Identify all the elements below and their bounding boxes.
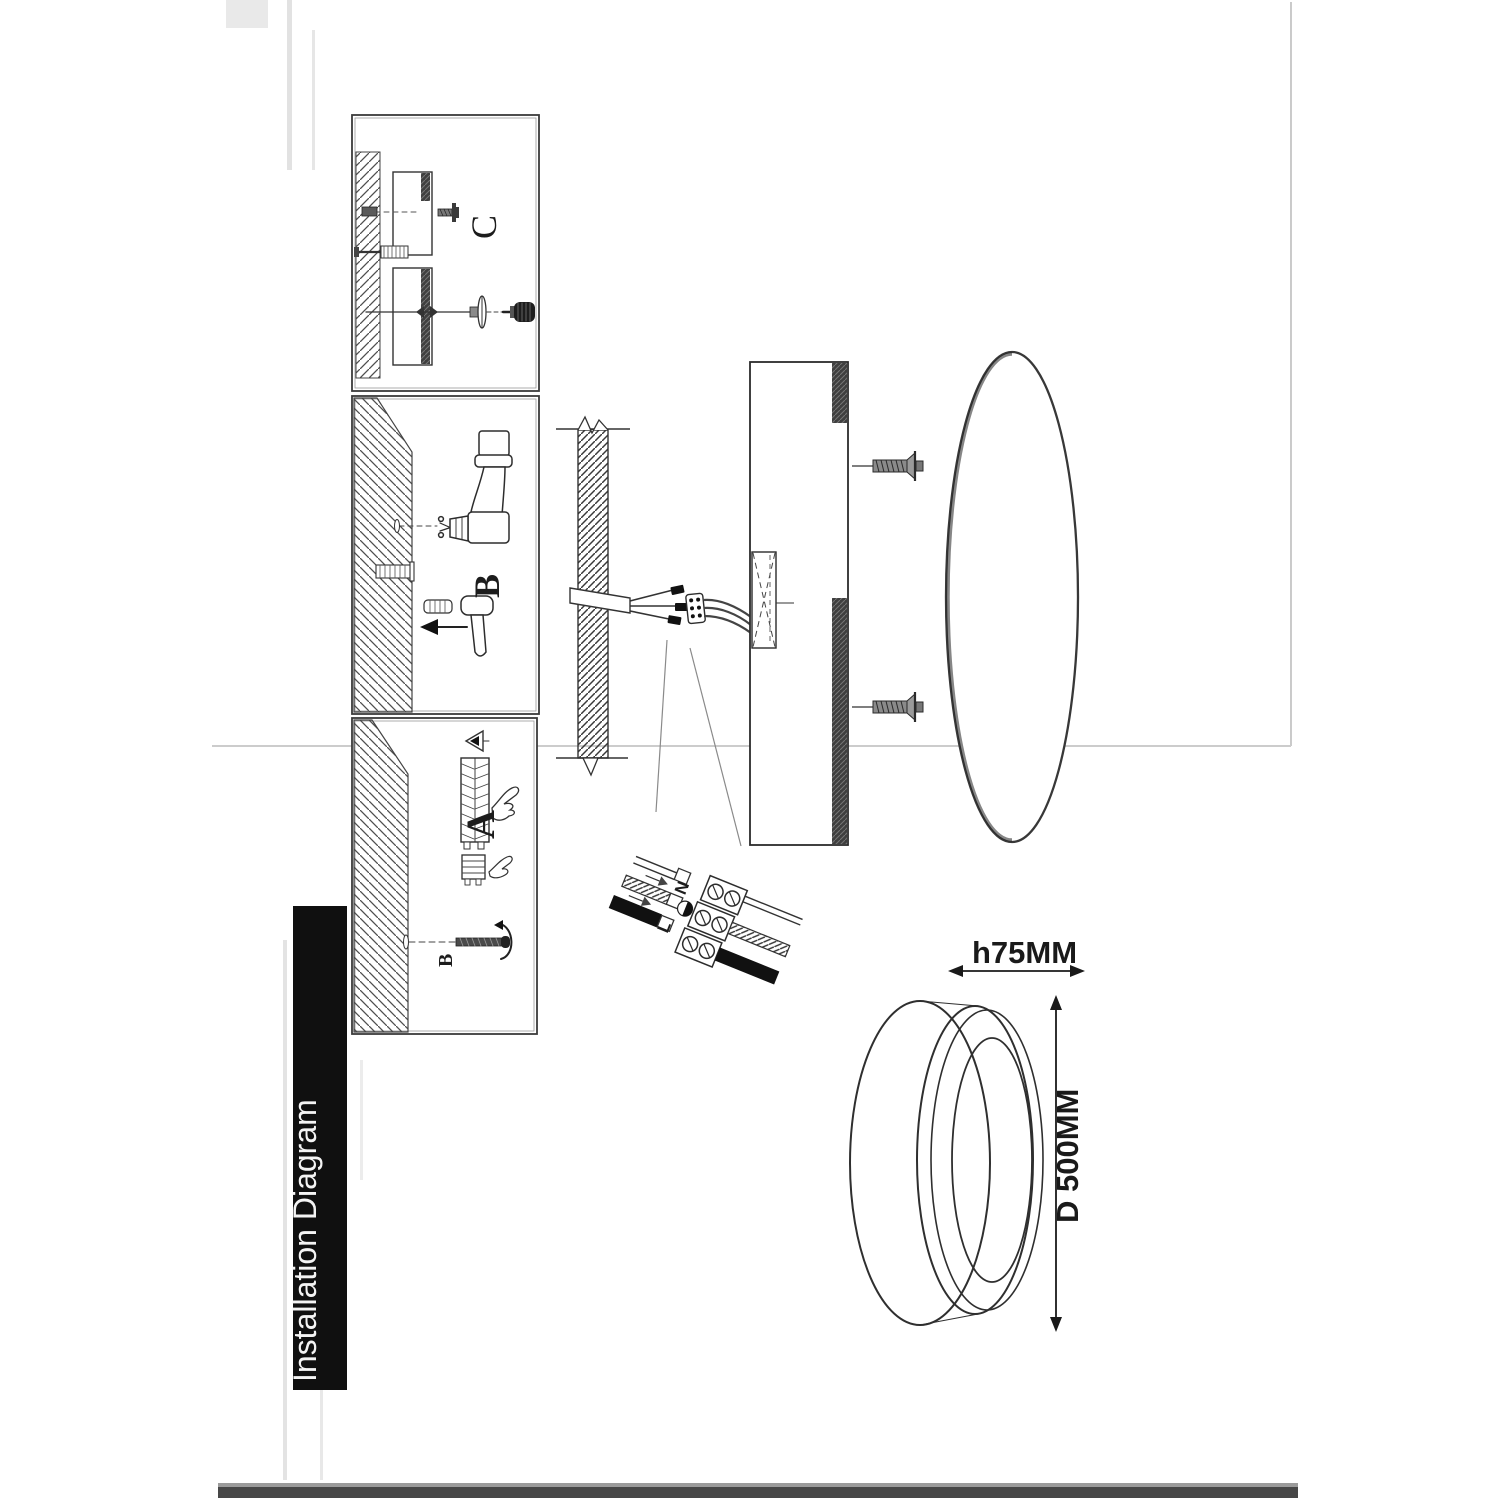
wire-tip [667, 615, 681, 625]
bracket-upper-flange [421, 173, 430, 201]
drilled-hole [395, 520, 400, 533]
wire-neutral [630, 590, 673, 601]
scan-smudge [226, 0, 268, 28]
scan-streak [287, 0, 292, 170]
panel-a-letter: A [458, 810, 503, 839]
plate-rim-top [832, 363, 847, 423]
connector-lead [704, 616, 751, 633]
height-dimension: h75MM [948, 935, 1085, 977]
wire-live [630, 611, 669, 619]
diagram-canvas: Installation Diagram [0, 0, 1500, 1500]
scan-bottom-edge-shadow [218, 1483, 1298, 1487]
scanned-installation-manual-page: Installation Diagram [0, 0, 1500, 1500]
scan-streak [360, 1060, 363, 1180]
scan-bottom-edge [218, 1487, 1298, 1498]
dowel-plug-icon [424, 600, 452, 613]
panel-step-c: C [352, 115, 539, 391]
wire-tip [670, 585, 684, 596]
output-wire-neutral [743, 896, 803, 925]
terminal-block-detail: N L [603, 845, 805, 992]
installation-diagram-banner: Installation Diagram [287, 906, 347, 1390]
panel-b-letter: B [467, 574, 507, 598]
panel-step-a: A B [352, 718, 537, 1034]
plate-rim-bottom [832, 598, 847, 844]
panel-c-letter: C [464, 215, 504, 239]
plug-connector-icon [686, 593, 706, 624]
mounting-screw-bottom [852, 692, 923, 722]
diffuser-cover [946, 352, 1078, 842]
screw-in-wall-icon [362, 207, 377, 216]
panel-step-b: B [352, 396, 539, 714]
diameter-dimension: D 500MM [1050, 995, 1085, 1332]
lamp-3d-drawing [850, 1001, 1043, 1325]
wall-section-hatched [354, 720, 408, 1032]
output-wire-earth [728, 922, 790, 956]
wall-anchor-icon [376, 562, 414, 581]
mounting-screw-top [852, 451, 923, 481]
scan-streak [312, 30, 315, 170]
wall-section-hatched [354, 398, 412, 712]
break-symbol-bottom [583, 758, 598, 775]
fixture-dimension-figure: h75MM D 500MM [850, 935, 1085, 1332]
screw-label: B [435, 954, 457, 967]
wall-section-hatched [356, 152, 380, 378]
leader-lines [656, 640, 741, 846]
mounting-plate-section [750, 362, 848, 845]
output-wire-live [715, 948, 780, 985]
height-dimension-label: h75MM [972, 935, 1077, 970]
banner-title: Installation Diagram [287, 1099, 323, 1382]
